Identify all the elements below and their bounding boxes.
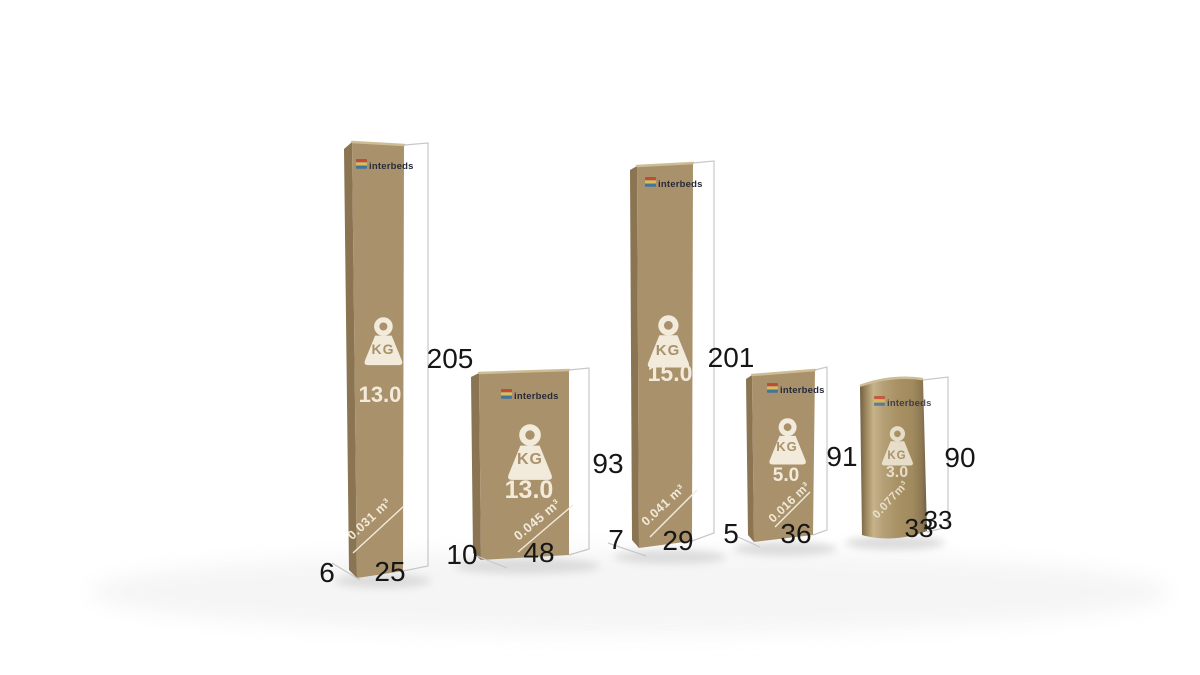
weight-value: 13.0	[359, 382, 402, 407]
weight-unit-label: KG	[776, 439, 798, 454]
weight-unit-label: KG	[517, 451, 543, 468]
height-label: 90	[944, 442, 975, 473]
floor-wash	[90, 550, 1170, 634]
width-label: 48	[523, 537, 554, 568]
depth-label: 6	[319, 557, 335, 588]
interbeds-layers-icon	[874, 396, 885, 406]
interbeds-layers-icon	[501, 389, 512, 399]
height-label: 205	[427, 343, 474, 374]
package-2-measure-wireframe	[569, 368, 589, 555]
package-2: interbeds KG 13.0 0.045 m³ 93 10 48	[446, 368, 623, 570]
logo-text: interbeds	[369, 161, 414, 172]
package-1: interbeds KG 13.0 0.031 m³ 205 6 25	[319, 142, 473, 588]
width-label: 33	[924, 505, 953, 535]
weight-value: 5.0	[773, 465, 799, 486]
packaging-diagram-canvas: interbeds KG 13.0 0.031 m³ 205 6 25 inte…	[0, 0, 1200, 675]
logo-text: interbeds	[514, 391, 559, 402]
packaging-dimensions-scene: interbeds KG 13.0 0.031 m³ 205 6 25 inte…	[0, 0, 1200, 675]
package-3: interbeds KG 15.0 0.041 m³ 201 7 29	[608, 161, 754, 556]
package-1-measure-wireframe	[403, 143, 428, 571]
package-5: interbeds KG 3.0 0.077m³ 90 33 33	[860, 377, 976, 543]
weight-value: 13.0	[505, 476, 554, 504]
interbeds-layers-icon	[767, 383, 778, 393]
interbeds-layers-icon	[356, 159, 367, 169]
depth-label: 10	[446, 539, 477, 570]
logo-text: interbeds	[780, 385, 825, 396]
weight-unit-label: KG	[372, 341, 395, 357]
interbeds-layers-icon	[645, 177, 656, 187]
weight-value: 3.0	[886, 464, 908, 481]
height-label: 91	[826, 441, 857, 472]
width-label: 36	[780, 518, 811, 549]
weight-unit-label: KG	[656, 342, 681, 359]
depth-label: 5	[723, 518, 739, 549]
height-label: 93	[592, 448, 623, 479]
depth-label: 7	[608, 524, 624, 555]
width-label: 25	[374, 556, 405, 587]
package-4: interbeds KG 5.0 0.016 m³ 91 5 36	[723, 367, 857, 549]
logo-text: interbeds	[658, 179, 703, 190]
weight-value: 15.0	[648, 360, 693, 386]
logo-text: interbeds	[887, 398, 932, 409]
width-label: 29	[662, 525, 693, 556]
height-label: 201	[708, 342, 755, 373]
weight-unit-label: KG	[887, 450, 906, 462]
